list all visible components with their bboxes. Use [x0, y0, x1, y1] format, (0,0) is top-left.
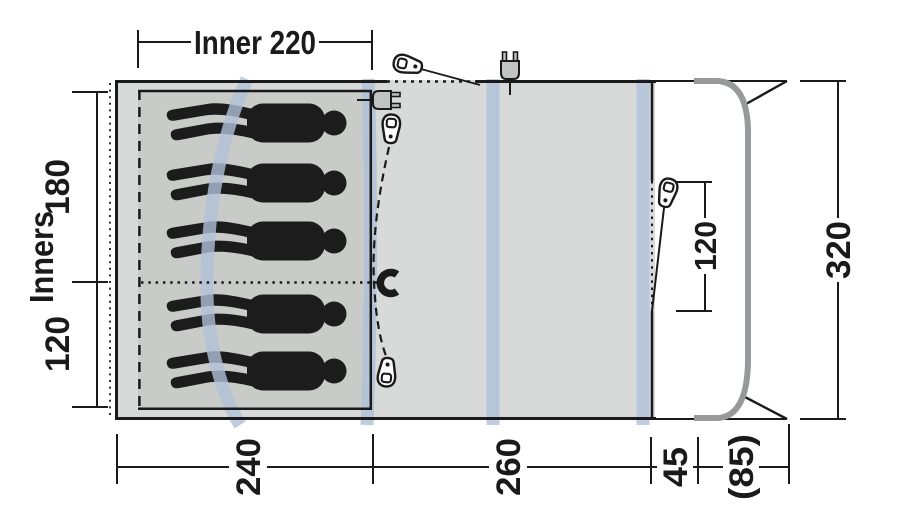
- canopy-guy-bottom: [743, 396, 787, 419]
- label-inner-depth-back: 180: [39, 159, 77, 215]
- inner-depth-front-label: 120: [39, 316, 77, 372]
- zipper-toggle-icon: [655, 177, 679, 209]
- label-inner-width: Inner 220: [191, 24, 319, 61]
- width-bedroom-label: 240: [230, 438, 268, 496]
- floorplan-canvas: Inner 220 Inners 180 120 320 120 240 260: [0, 0, 900, 512]
- total-depth-label: 320: [820, 221, 858, 279]
- tieback-toggle-icon: [392, 53, 424, 76]
- label-width-front: 45: [657, 444, 695, 490]
- label-inner-depth-front: 120: [39, 316, 77, 372]
- width-canopy-label: (85): [723, 434, 761, 500]
- front-door-width-label: 120: [688, 221, 723, 271]
- label-inners: Inners: [23, 211, 60, 303]
- inner-width-label: Inner 220: [194, 24, 316, 61]
- label-width-living: 260: [489, 435, 528, 499]
- inners-axis-label: Inners: [23, 211, 60, 303]
- canopy-guy-top: [746, 81, 787, 104]
- label-total-depth: 320: [819, 218, 858, 282]
- label-front-door-width: 120: [688, 218, 723, 274]
- tent-floorplan-diagram: Inner 220 Inners 180 120 320 120 240 260: [0, 0, 900, 512]
- inner-depth-back-label: 180: [39, 159, 77, 215]
- zipper-toggle-icon: [382, 114, 401, 143]
- label-width-bedroom: 240: [229, 435, 268, 499]
- width-living-label: 260: [490, 438, 528, 496]
- label-width-canopy: (85): [723, 432, 761, 502]
- width-front-label: 45: [657, 447, 695, 487]
